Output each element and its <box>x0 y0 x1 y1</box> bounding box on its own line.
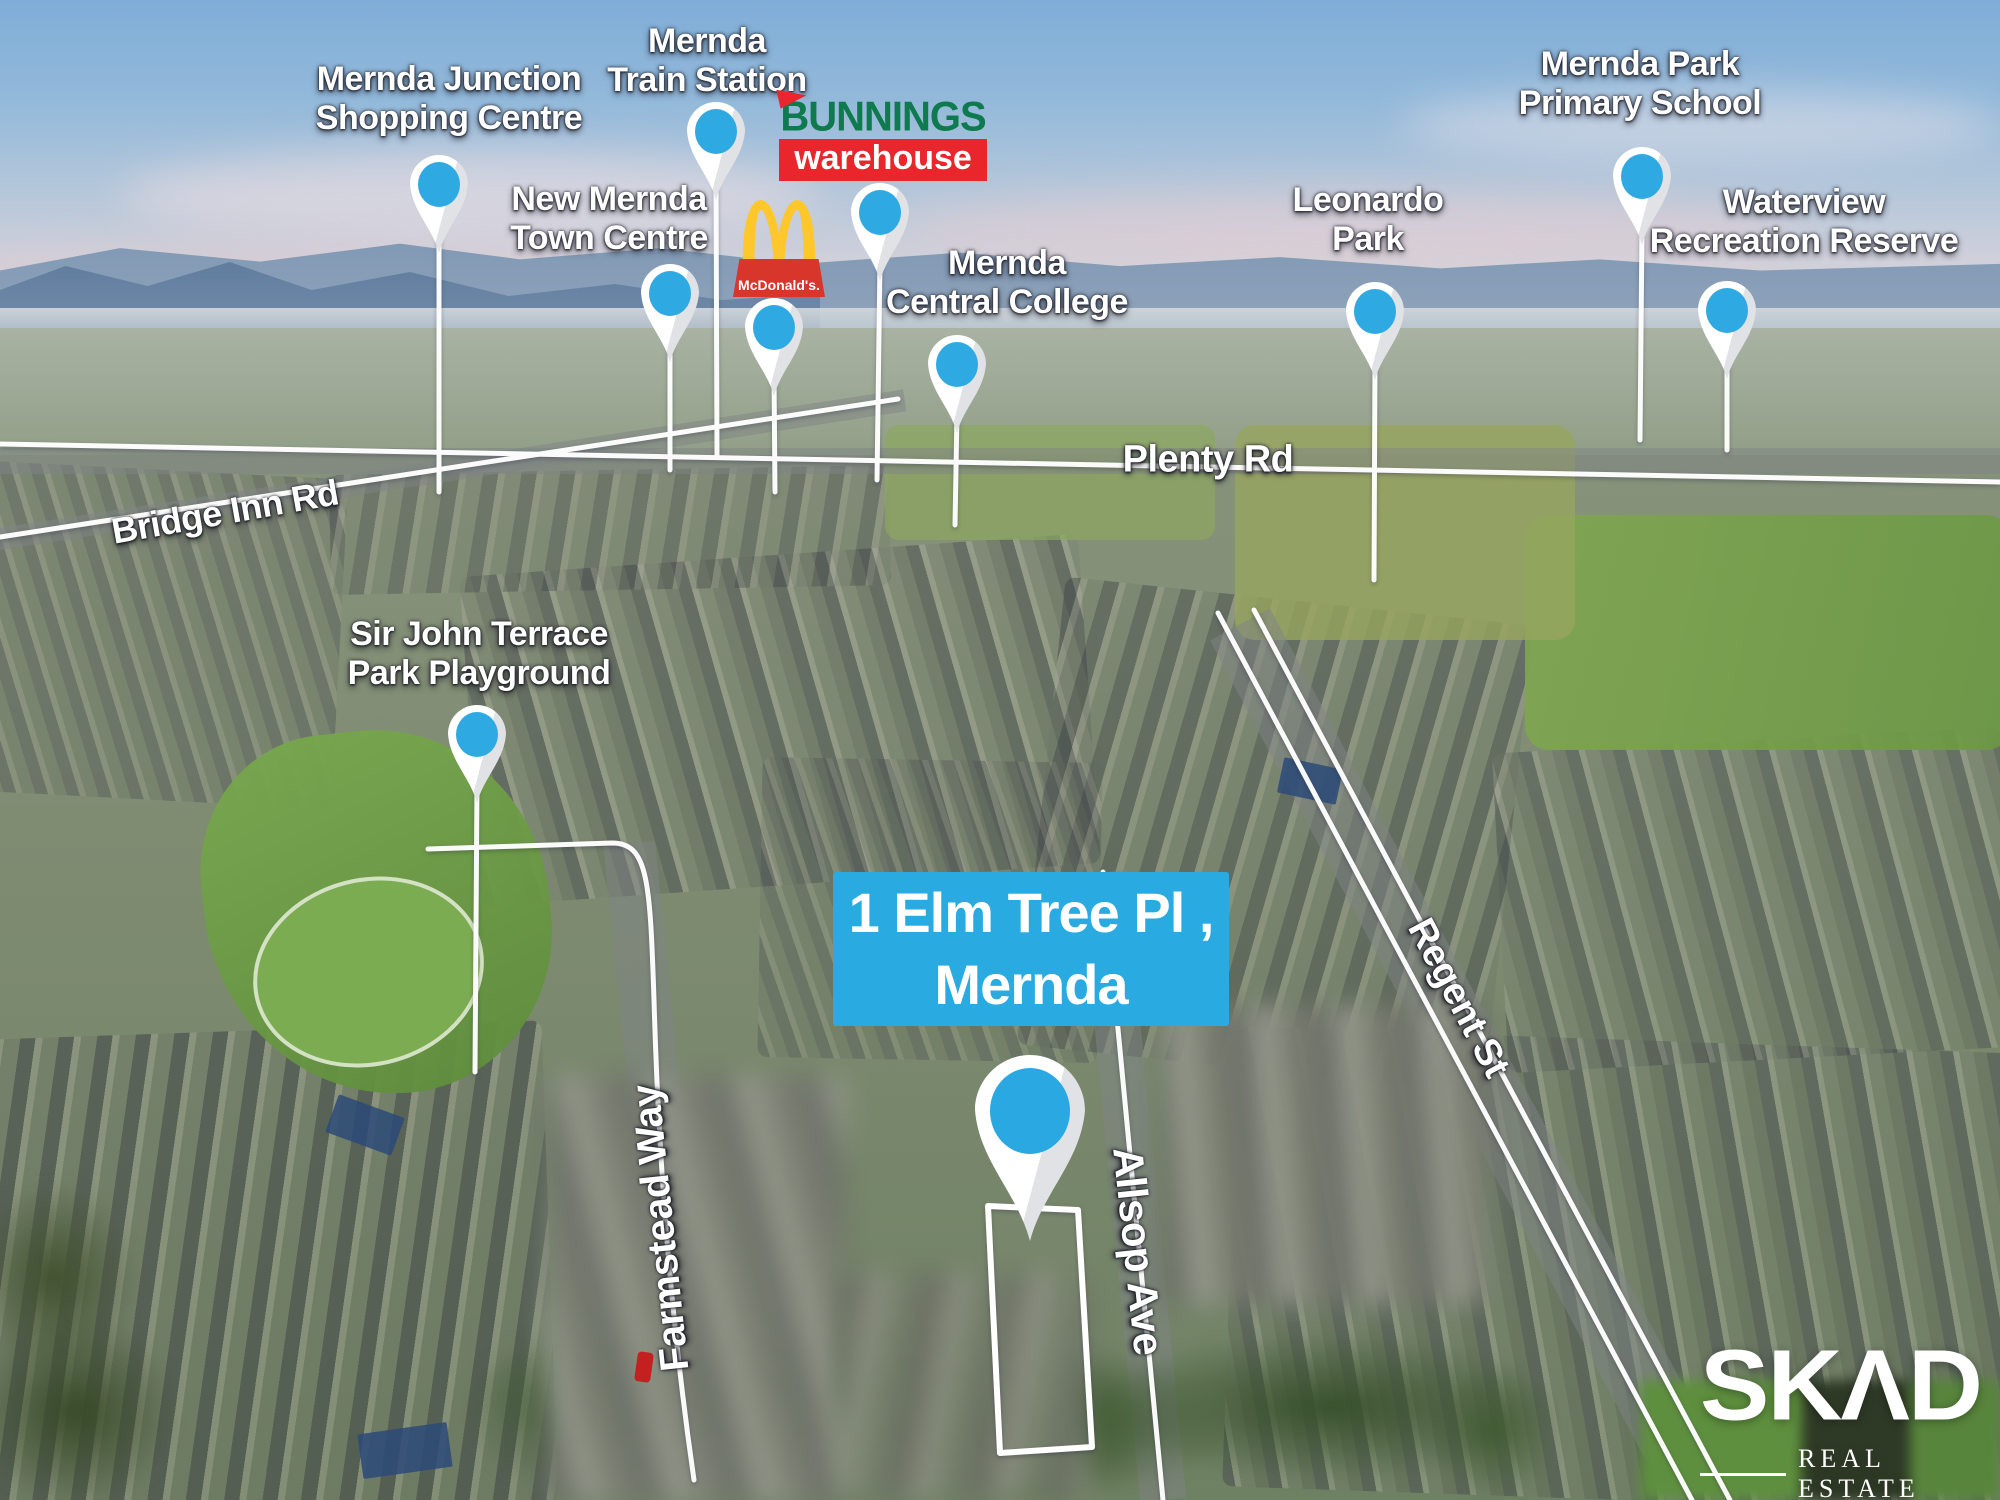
address-overlay: 1 Elm Tree Pl , Mernda <box>833 872 1229 1026</box>
bunnings-logo: BUNNINGS warehouse <box>779 97 987 181</box>
blurred-property <box>1160 1005 1490 1305</box>
label-central-college: MerndaCentral College <box>886 244 1128 323</box>
bunnings-wordmark: BUNNINGS <box>780 96 985 138</box>
label-primary-school: Mernda ParkPrimary School <box>1519 45 1761 124</box>
housing-block <box>1492 727 2000 1073</box>
address-line1: 1 Elm Tree Pl , <box>849 877 1214 949</box>
road-label-plenty-rd: Plenty Rd <box>1123 439 1294 482</box>
agency-logo: SKΛD REAL ESTATE <box>1700 1334 1996 1500</box>
label-town-centre: New MerndaTown Centre <box>510 180 708 259</box>
label-mernda-junction: Mernda JunctionShopping Centre <box>316 60 582 139</box>
address-line2: Mernda <box>934 949 1127 1021</box>
label-leonardo-park: LeonardoPark <box>1293 181 1444 260</box>
label-waterview: WaterviewRecreation Reserve <box>1650 183 1959 262</box>
bunnings-warehouse-banner: warehouse <box>779 139 987 181</box>
logo-rule <box>1700 1473 1786 1476</box>
aerial-location-map: Bridge Inn Rd Plenty Rd Regent St Allsop… <box>0 0 2000 1500</box>
mcdonalds-logo: McDonald's. <box>733 198 825 297</box>
label-sir-john-terrace: Sir John TerracePark Playground <box>348 615 611 694</box>
waterview-reserve-green <box>1525 515 2000 750</box>
blurred-property <box>838 1272 1088 1500</box>
mcdonalds-banner: McDonald's. <box>733 259 825 297</box>
tree-corner <box>0 1180 180 1500</box>
golden-arches-icon <box>737 198 821 262</box>
agency-logo-wordmark: SKΛD <box>1700 1336 1996 1436</box>
agency-tagline: REAL ESTATE <box>1798 1444 1996 1500</box>
blurred-property <box>545 1075 845 1500</box>
plenty-rd-road <box>0 448 2000 474</box>
label-train-station: MerndaTrain Station <box>607 22 806 101</box>
